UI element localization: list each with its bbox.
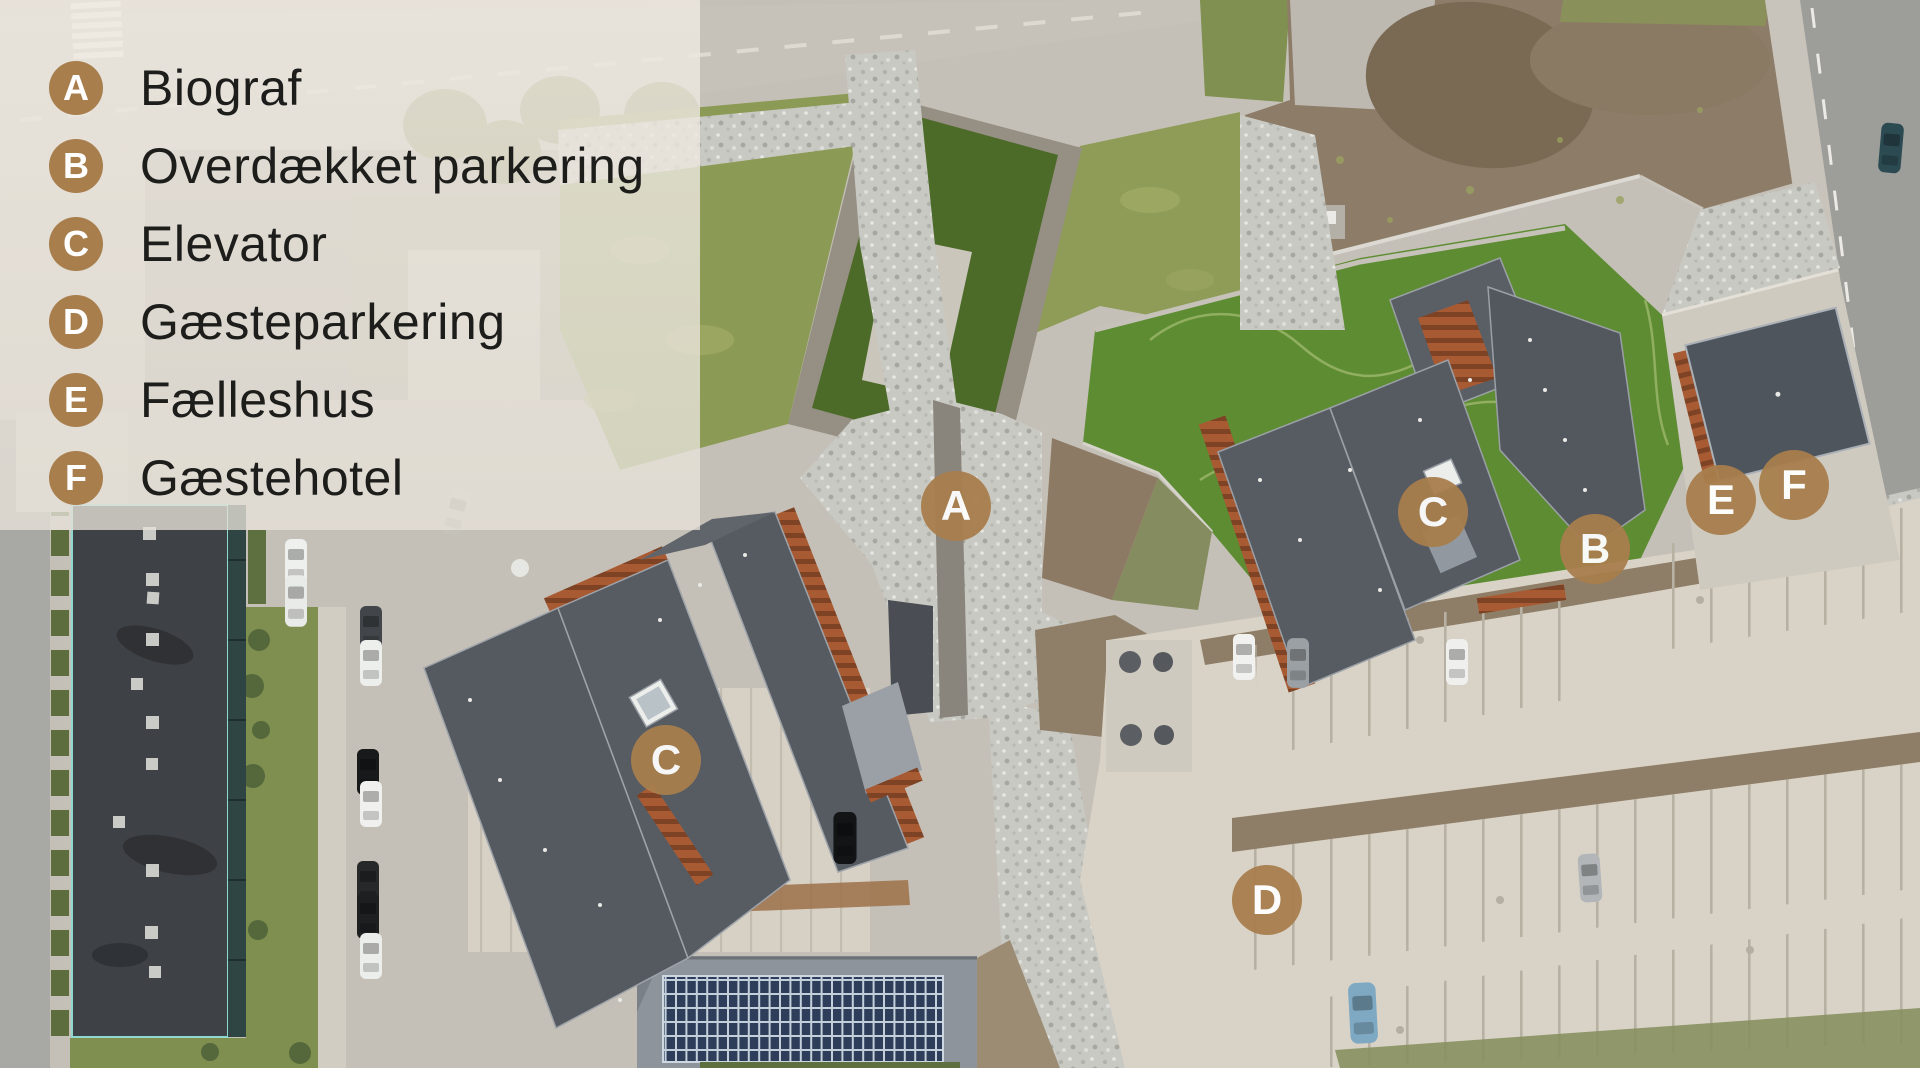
legend-marker-circle: F: [49, 451, 103, 505]
legend-item-E: EFælleshus: [0, 373, 700, 427]
legend-item-label: Fælleshus: [140, 371, 375, 429]
legend-item-label: Biograf: [140, 59, 302, 117]
legend-item-D: DGæsteparkering: [0, 295, 700, 349]
legend-item-C: CElevator: [0, 217, 700, 271]
blue-van: [1348, 982, 1379, 1044]
map-marker-D: D: [1232, 865, 1302, 935]
legend-marker-circle: B: [49, 139, 103, 193]
legend-panel: ABiografBOverdækket parkeringCElevatorDG…: [0, 0, 700, 530]
legend-item-label: Gæsteparkering: [140, 293, 506, 351]
map-marker-E: E: [1686, 465, 1756, 535]
solar-roof-building: [637, 956, 977, 1068]
legend-marker-circle: A: [49, 61, 103, 115]
legend-marker-circle: D: [49, 295, 103, 349]
car-on-road: [1878, 122, 1905, 173]
legend-marker-circle: C: [49, 217, 103, 271]
legend-item-label: Elevator: [140, 215, 327, 273]
legend-item-B: BOverdækket parkering: [0, 139, 700, 193]
map-marker-B: B: [1560, 514, 1630, 584]
legend-item-A: ABiograf: [0, 61, 700, 115]
walk-path: [318, 607, 346, 1068]
legend-marker-circle: E: [49, 373, 103, 427]
map-marker-C: C: [1398, 477, 1468, 547]
map-marker-A: A: [921, 471, 991, 541]
aerial-site-map: ABiografBOverdækket parkeringCElevatorDG…: [0, 0, 1920, 1068]
utility-pad: [1106, 640, 1192, 772]
legend-item-F: FGæstehotel: [0, 451, 700, 505]
legend-item-label: Overdækket parkering: [140, 137, 645, 195]
map-marker-C: C: [631, 725, 701, 795]
map-marker-F: F: [1759, 450, 1829, 520]
white-dot: [511, 559, 529, 577]
solar-panel-array: [663, 976, 943, 1062]
legend-item-label: Gæstehotel: [140, 449, 403, 507]
